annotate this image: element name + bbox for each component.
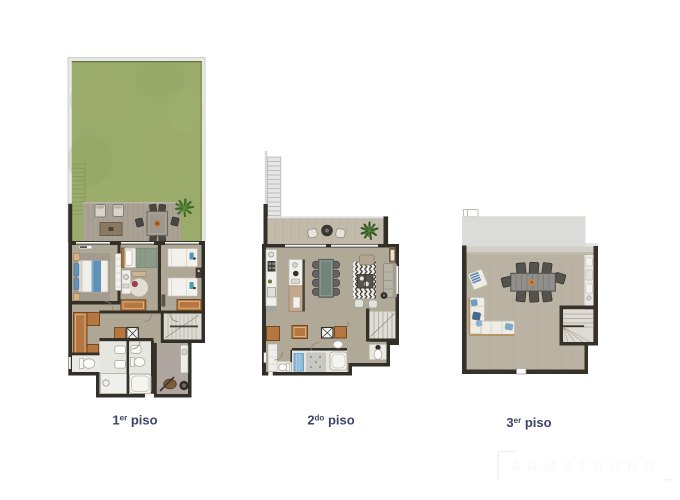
svg-text:ARMSTRONG: ARMSTRONG bbox=[511, 458, 661, 474]
svg-text:1er piso: 1er piso bbox=[112, 413, 157, 428]
svg-text:3er piso: 3er piso bbox=[506, 415, 551, 430]
svg-text:2do piso: 2do piso bbox=[307, 413, 354, 428]
